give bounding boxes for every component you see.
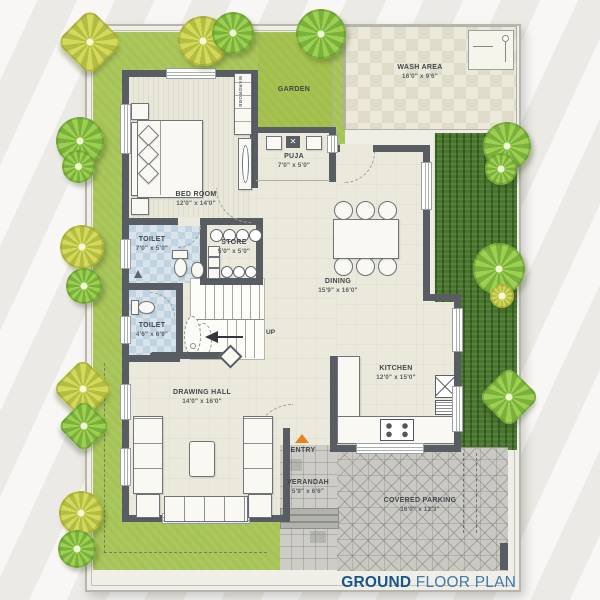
- parking-column-dashed-line: [463, 453, 464, 533]
- washbasin-icon: [191, 262, 204, 278]
- wall: [122, 283, 183, 290]
- label-entry: ENTRY: [291, 447, 316, 456]
- tree-icon: [59, 491, 103, 535]
- store-rack-icon: [249, 229, 262, 242]
- wardrobe-label: WARDROBE: [238, 76, 243, 108]
- sofa-icon: [133, 416, 163, 494]
- floor-plan-canvas: WARDROBE ✕ WASH AREA 16': [0, 0, 600, 600]
- puja-shelf-icon: [266, 136, 282, 150]
- wall: [256, 218, 263, 285]
- window: [166, 68, 216, 79]
- window: [120, 384, 131, 420]
- label-up: UP: [266, 329, 275, 336]
- chair-icon: [378, 257, 397, 276]
- corner-table-icon: [248, 494, 272, 518]
- store-rack-icon: [221, 266, 233, 278]
- wall: [176, 290, 183, 356]
- tree-icon: [485, 153, 517, 185]
- label-store: STORE 5'0" x 5'0": [218, 239, 250, 256]
- puja-step-line: [256, 180, 330, 181]
- chair-icon: [334, 257, 353, 276]
- puja-shelf-icon: [306, 136, 322, 150]
- plan-title: GROUND FLOOR PLAN: [341, 574, 516, 592]
- wall: [330, 356, 337, 452]
- store-rack-icon: [208, 268, 220, 279]
- chair-icon: [378, 201, 397, 220]
- store-rack-icon: [245, 266, 257, 278]
- tree-icon: [62, 150, 95, 183]
- toilet-wc-icon: [138, 301, 155, 314]
- dining-table-icon: [333, 219, 399, 259]
- sofa-icon: [243, 416, 273, 494]
- tree-icon: [60, 225, 104, 269]
- label-covered-parking: COVERED PARKING 16'0" x 12'3": [384, 497, 457, 514]
- window: [421, 162, 432, 210]
- wall: [254, 127, 336, 133]
- window: [356, 443, 424, 454]
- side-table-icon: [131, 103, 149, 120]
- tree-icon: [490, 284, 514, 308]
- wash-basin-icon: [468, 30, 514, 70]
- label-toilet-2: TOILET 4'6" x 6'9": [136, 322, 168, 339]
- wardrobe-icon: WARDROBE: [234, 73, 252, 135]
- side-table-icon: [131, 198, 149, 215]
- label-wash-area: WASH AREA 16'0" x 9'6": [397, 64, 442, 81]
- window: [120, 448, 131, 486]
- dresser-icon: [238, 138, 252, 190]
- plan-title-bold: GROUND: [341, 574, 411, 591]
- label-drawing-hall: DRAWING HALL 14'0" x 16'0": [173, 389, 231, 406]
- wall: [500, 543, 508, 570]
- tree-icon: [66, 268, 102, 304]
- entry-arrow-icon: [295, 434, 309, 443]
- label-verandah: VERANDAH 5'9" x 6'6": [287, 479, 329, 496]
- tree-icon: [212, 12, 254, 54]
- tree-icon: [296, 9, 346, 59]
- label-toilet-1: TOILET 7'0" x 5'0": [136, 236, 168, 253]
- window: [327, 135, 338, 153]
- label-puja: PUJA 7'0" x 5'0": [278, 153, 310, 170]
- chair-icon: [356, 201, 375, 220]
- tree-icon: [58, 530, 96, 568]
- window: [452, 386, 463, 432]
- toilet-wc-icon: [174, 258, 187, 277]
- verandah-step: [280, 522, 339, 529]
- stove-icon: [380, 419, 414, 441]
- window: [452, 308, 463, 352]
- label-bed-room: BED ROOM 12'0" x 14'0": [176, 191, 217, 208]
- label-garden: GARDEN: [278, 86, 310, 95]
- corner-table-icon: [136, 494, 160, 518]
- plan-title-rest: FLOOR PLAN: [411, 574, 516, 591]
- bathtub-icon: [184, 316, 201, 356]
- label-kitchen: KITCHEN 12'0" x 15'0": [376, 365, 416, 382]
- wall: [200, 278, 263, 285]
- chair-icon: [334, 201, 353, 220]
- store-rack-icon: [233, 266, 245, 278]
- parking-column-dashed-line: [476, 453, 477, 533]
- window: [120, 239, 131, 269]
- kitchen-counter: [337, 356, 360, 418]
- store-rack-icon: [208, 257, 220, 268]
- puja-shelf-icon: ✕: [286, 136, 300, 148]
- window: [120, 104, 131, 154]
- window: [120, 316, 131, 344]
- sofa-icon: [164, 496, 248, 522]
- label-dining: DINING 15'9" x 16'0": [318, 278, 358, 295]
- chair-icon: [356, 257, 375, 276]
- projection-dashed-line: [104, 552, 267, 553]
- coffee-table-icon: [189, 441, 215, 477]
